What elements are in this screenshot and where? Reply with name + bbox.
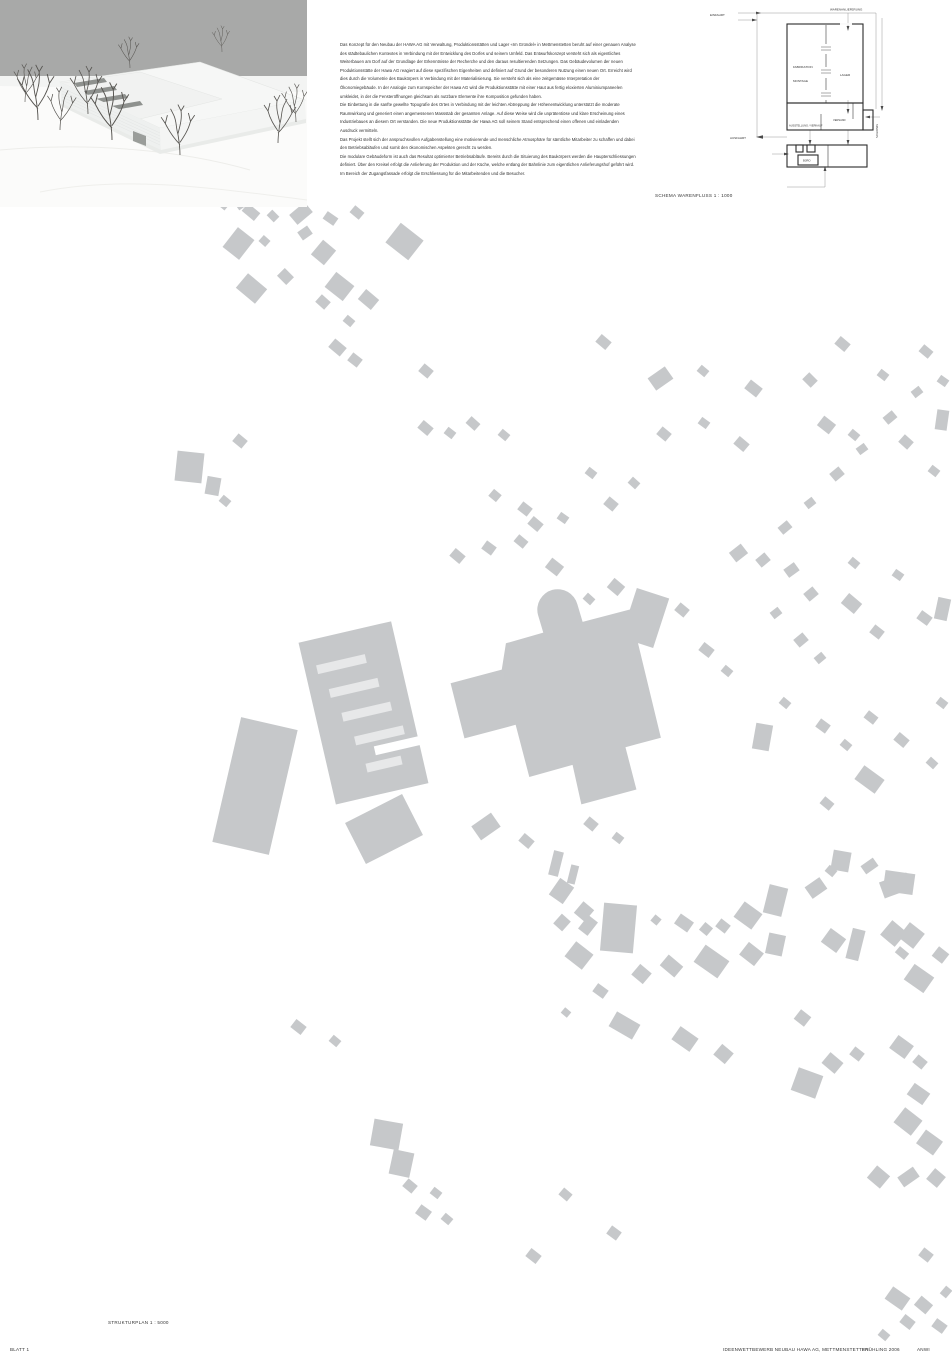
building-footprint	[698, 417, 711, 429]
building-footprint	[932, 946, 950, 963]
building-footprint	[564, 941, 593, 970]
schema-warenfluss-diagram: EINFAHRT WARENANLIEFERUNG FABRIKATION MO…	[702, 4, 917, 194]
building-footprint	[498, 429, 511, 442]
building-footprint	[290, 1019, 306, 1035]
building-footprint	[841, 593, 862, 614]
building-footprint	[804, 497, 817, 509]
building-footprint	[864, 710, 879, 724]
building-footprint	[744, 380, 763, 398]
building-footprint	[329, 1035, 342, 1048]
footer-project-title: IDEENWETTBEWERB NEUBAU HAWA AG, METTMENS…	[723, 1347, 869, 1352]
building-footprint	[829, 466, 845, 481]
building-footprint	[892, 569, 905, 581]
building-footprint	[848, 557, 861, 570]
building-footprint	[603, 496, 619, 511]
building-footprint	[343, 315, 356, 328]
building-footprint	[802, 372, 818, 388]
building-footprint	[258, 235, 270, 247]
building-footprint	[856, 443, 869, 455]
building-footprint	[817, 416, 836, 435]
building-footprint	[583, 816, 599, 831]
description-paragraph: Das Projekt stellt sich der anspruchsvol…	[340, 136, 637, 153]
building-footprint	[919, 344, 934, 359]
building-footprint	[517, 501, 533, 516]
schema-label-fabrikation: FABRIKATION	[793, 65, 813, 69]
building-footprint	[713, 1044, 733, 1064]
building-footprint	[592, 983, 608, 999]
building-footprint	[814, 652, 827, 665]
building-footprint	[595, 334, 611, 350]
building-footprint	[389, 1149, 415, 1178]
building-footprint	[628, 477, 641, 490]
building-footprint	[175, 451, 205, 484]
hawa-building-footprint	[299, 621, 430, 804]
building-footprint	[877, 369, 890, 381]
building-footprint	[936, 697, 949, 709]
building-footprint	[219, 495, 232, 508]
building-footprint	[765, 932, 786, 956]
building-footprint	[223, 227, 255, 260]
building-footprint	[734, 901, 763, 929]
building-footprint	[733, 436, 749, 452]
building-footprint	[845, 928, 865, 961]
building-footprint	[897, 1167, 919, 1188]
building-footprint	[907, 1083, 931, 1105]
footer-sheet-number: BLATT 1	[10, 1347, 29, 1352]
schema-label-ausfahrt: AUSFAHRT	[730, 136, 746, 140]
building-footprint	[417, 420, 433, 436]
building-footprint	[548, 850, 564, 877]
building-footprint	[820, 796, 835, 811]
arrow-icon	[752, 19, 757, 22]
building-footprint	[444, 427, 457, 439]
building-footprint	[358, 289, 379, 310]
building-footprint	[916, 610, 932, 626]
building-footprint	[912, 1054, 928, 1069]
building-footprint	[869, 624, 885, 639]
building-footprint	[277, 268, 294, 285]
building-footprint	[385, 223, 423, 261]
building-footprint	[557, 512, 570, 524]
building-footprint	[885, 1286, 911, 1310]
schema-label-warenanlieferung: WARENANLIEFERUNG	[830, 8, 863, 12]
building-footprint	[567, 864, 579, 884]
building-footprint	[488, 489, 501, 502]
building-footprint	[609, 1011, 641, 1039]
building-footprint	[698, 642, 714, 658]
building-footprint	[899, 1314, 915, 1330]
building-footprint	[631, 964, 651, 984]
building-footprint	[561, 1007, 572, 1018]
building-footprint	[674, 913, 694, 932]
building-footprint	[545, 558, 564, 577]
building-footprint	[674, 602, 690, 617]
building-footprint	[323, 211, 339, 226]
arrow-icon	[881, 106, 884, 111]
building-footprint	[527, 516, 543, 532]
description-paragraph: Die modulare Gebäudeform ist auch das Re…	[340, 153, 637, 179]
building-footprint	[297, 225, 313, 240]
building-footprint	[430, 1187, 443, 1199]
building-footprint	[931, 1318, 947, 1334]
site-plan-buildings	[175, 195, 952, 1342]
building-footprint	[699, 922, 713, 936]
description-paragraph: Die Einbettung in die sanfte gewellte To…	[340, 101, 637, 135]
building-footprint	[370, 1119, 403, 1151]
building-footprint	[793, 632, 809, 647]
building-footprint	[848, 429, 861, 442]
building-footprint	[325, 272, 355, 301]
building-footprint	[267, 210, 280, 223]
schema-caption: SCHEMA WARENFLUSS 1 : 1000	[655, 193, 733, 198]
building-footprint	[849, 1046, 865, 1061]
building-footprint	[729, 544, 748, 563]
building-footprint	[904, 964, 935, 993]
building-footprint	[558, 1188, 572, 1202]
building-footprint	[612, 832, 625, 844]
building-footprint	[926, 757, 939, 770]
building-footprint	[763, 884, 788, 917]
building-footprint	[232, 433, 248, 448]
building-footprint	[895, 946, 909, 960]
schema-label-buero: BÜRO	[803, 159, 811, 163]
building-footprint	[867, 1165, 890, 1188]
building-footprint	[311, 240, 336, 265]
building-footprint	[315, 294, 331, 309]
building-footprint	[883, 410, 898, 425]
court-notch	[796, 145, 803, 152]
schema-label-spedition: SPEDITION	[875, 124, 879, 138]
building-footprint	[514, 534, 529, 549]
building-footprint	[415, 1204, 432, 1221]
schema-label-ausstellung: AUSSTELLUNG / VERKAUF	[789, 124, 823, 128]
building-footprint	[715, 918, 731, 933]
building-footprint	[778, 520, 793, 535]
building-footprint	[525, 1248, 541, 1264]
model-photo	[0, 0, 307, 207]
schema-label-einfahrt: EINFAHRT	[710, 13, 725, 17]
building-footprint	[752, 723, 773, 752]
building-footprint	[889, 1035, 914, 1059]
building-footprint	[600, 903, 637, 954]
building-footprint	[518, 833, 534, 849]
building-footprint	[650, 914, 661, 925]
building-footprint	[791, 1067, 824, 1098]
building-footprint	[697, 365, 710, 378]
building-footprint	[911, 386, 924, 398]
building-footprint	[821, 928, 846, 953]
building-footprint	[840, 739, 853, 752]
building-footprint	[926, 1168, 946, 1188]
building-footprint	[553, 914, 571, 932]
building-footprint	[934, 597, 951, 621]
building-footprint	[937, 375, 950, 387]
building-footprint	[350, 205, 365, 220]
building-footprint	[834, 336, 850, 352]
building-footprint	[918, 1247, 934, 1262]
building-footprint	[739, 942, 764, 966]
sheet: Das Konzept für den Neubau der HAWA AG m…	[0, 0, 952, 1361]
building-footprint	[212, 717, 297, 855]
footer-code: ANWI	[917, 1347, 930, 1352]
photo-backdrop	[0, 0, 307, 76]
building-footprint	[860, 858, 878, 875]
building-footprint	[328, 338, 347, 356]
building-footprint	[607, 578, 625, 596]
building-footprint	[783, 562, 799, 578]
building-footprint	[721, 665, 734, 678]
building-footprint	[648, 366, 674, 390]
building-footprint	[803, 586, 819, 601]
building-footprint	[928, 465, 941, 477]
plan-caption: STRUKTURPLAN 1 : 5000	[108, 1320, 169, 1325]
building-footprint	[878, 1329, 891, 1342]
building-footprint	[418, 363, 434, 378]
building-footprint	[671, 1026, 698, 1052]
building-footprint	[606, 1225, 622, 1240]
building-footprint	[805, 877, 828, 899]
building-footprint	[854, 765, 884, 793]
building-footprint	[940, 1286, 952, 1299]
building-footprint	[449, 548, 465, 564]
building-footprint	[893, 732, 909, 748]
model-photo-image	[0, 0, 307, 207]
building-footprint	[914, 1296, 933, 1315]
building-footprint	[821, 1052, 843, 1074]
building-footprint	[466, 416, 481, 431]
court-notch	[807, 145, 815, 152]
building-footprint	[441, 1213, 454, 1226]
schema-label-montage: MONTAGE	[793, 79, 808, 83]
building-footprint	[755, 552, 771, 567]
building-footprint	[481, 540, 497, 555]
building-footprint	[660, 955, 684, 978]
arrow-icon	[865, 116, 870, 119]
building-footprint	[583, 593, 596, 606]
building-footprint	[916, 1129, 943, 1155]
building-footprint	[656, 426, 672, 441]
arrow-icon	[809, 140, 812, 145]
building-footprint	[205, 476, 222, 496]
building-footprint	[402, 1178, 418, 1193]
schema-label-versand: VERSAND	[833, 118, 846, 122]
footer-date: FRÜHLING 2006	[862, 1347, 900, 1352]
building-footprint	[893, 1107, 922, 1136]
building-footprint	[471, 813, 500, 841]
building-footprint	[236, 273, 267, 304]
arrow-icon	[756, 12, 761, 15]
schema-label-lager: LAGER	[840, 73, 851, 77]
building-footprint	[585, 467, 598, 479]
description-paragraph: Das Konzept für den Neubau der HAWA AG m…	[340, 41, 637, 101]
building-footprint	[694, 945, 730, 979]
building-footprint	[779, 697, 792, 710]
building-footprint	[898, 922, 925, 949]
building-footprint	[898, 434, 914, 449]
building-footprint	[815, 718, 831, 733]
building-footprint	[770, 607, 783, 619]
arrow-icon	[847, 26, 850, 31]
arrow-icon	[847, 109, 850, 114]
project-description: Das Konzept für den Neubau der HAWA AG m…	[340, 41, 637, 179]
arrow-icon	[847, 140, 850, 145]
building-footprint	[794, 1009, 812, 1026]
building-footprint	[345, 794, 423, 864]
building-footprint	[935, 409, 950, 430]
building-footprint	[347, 352, 363, 367]
